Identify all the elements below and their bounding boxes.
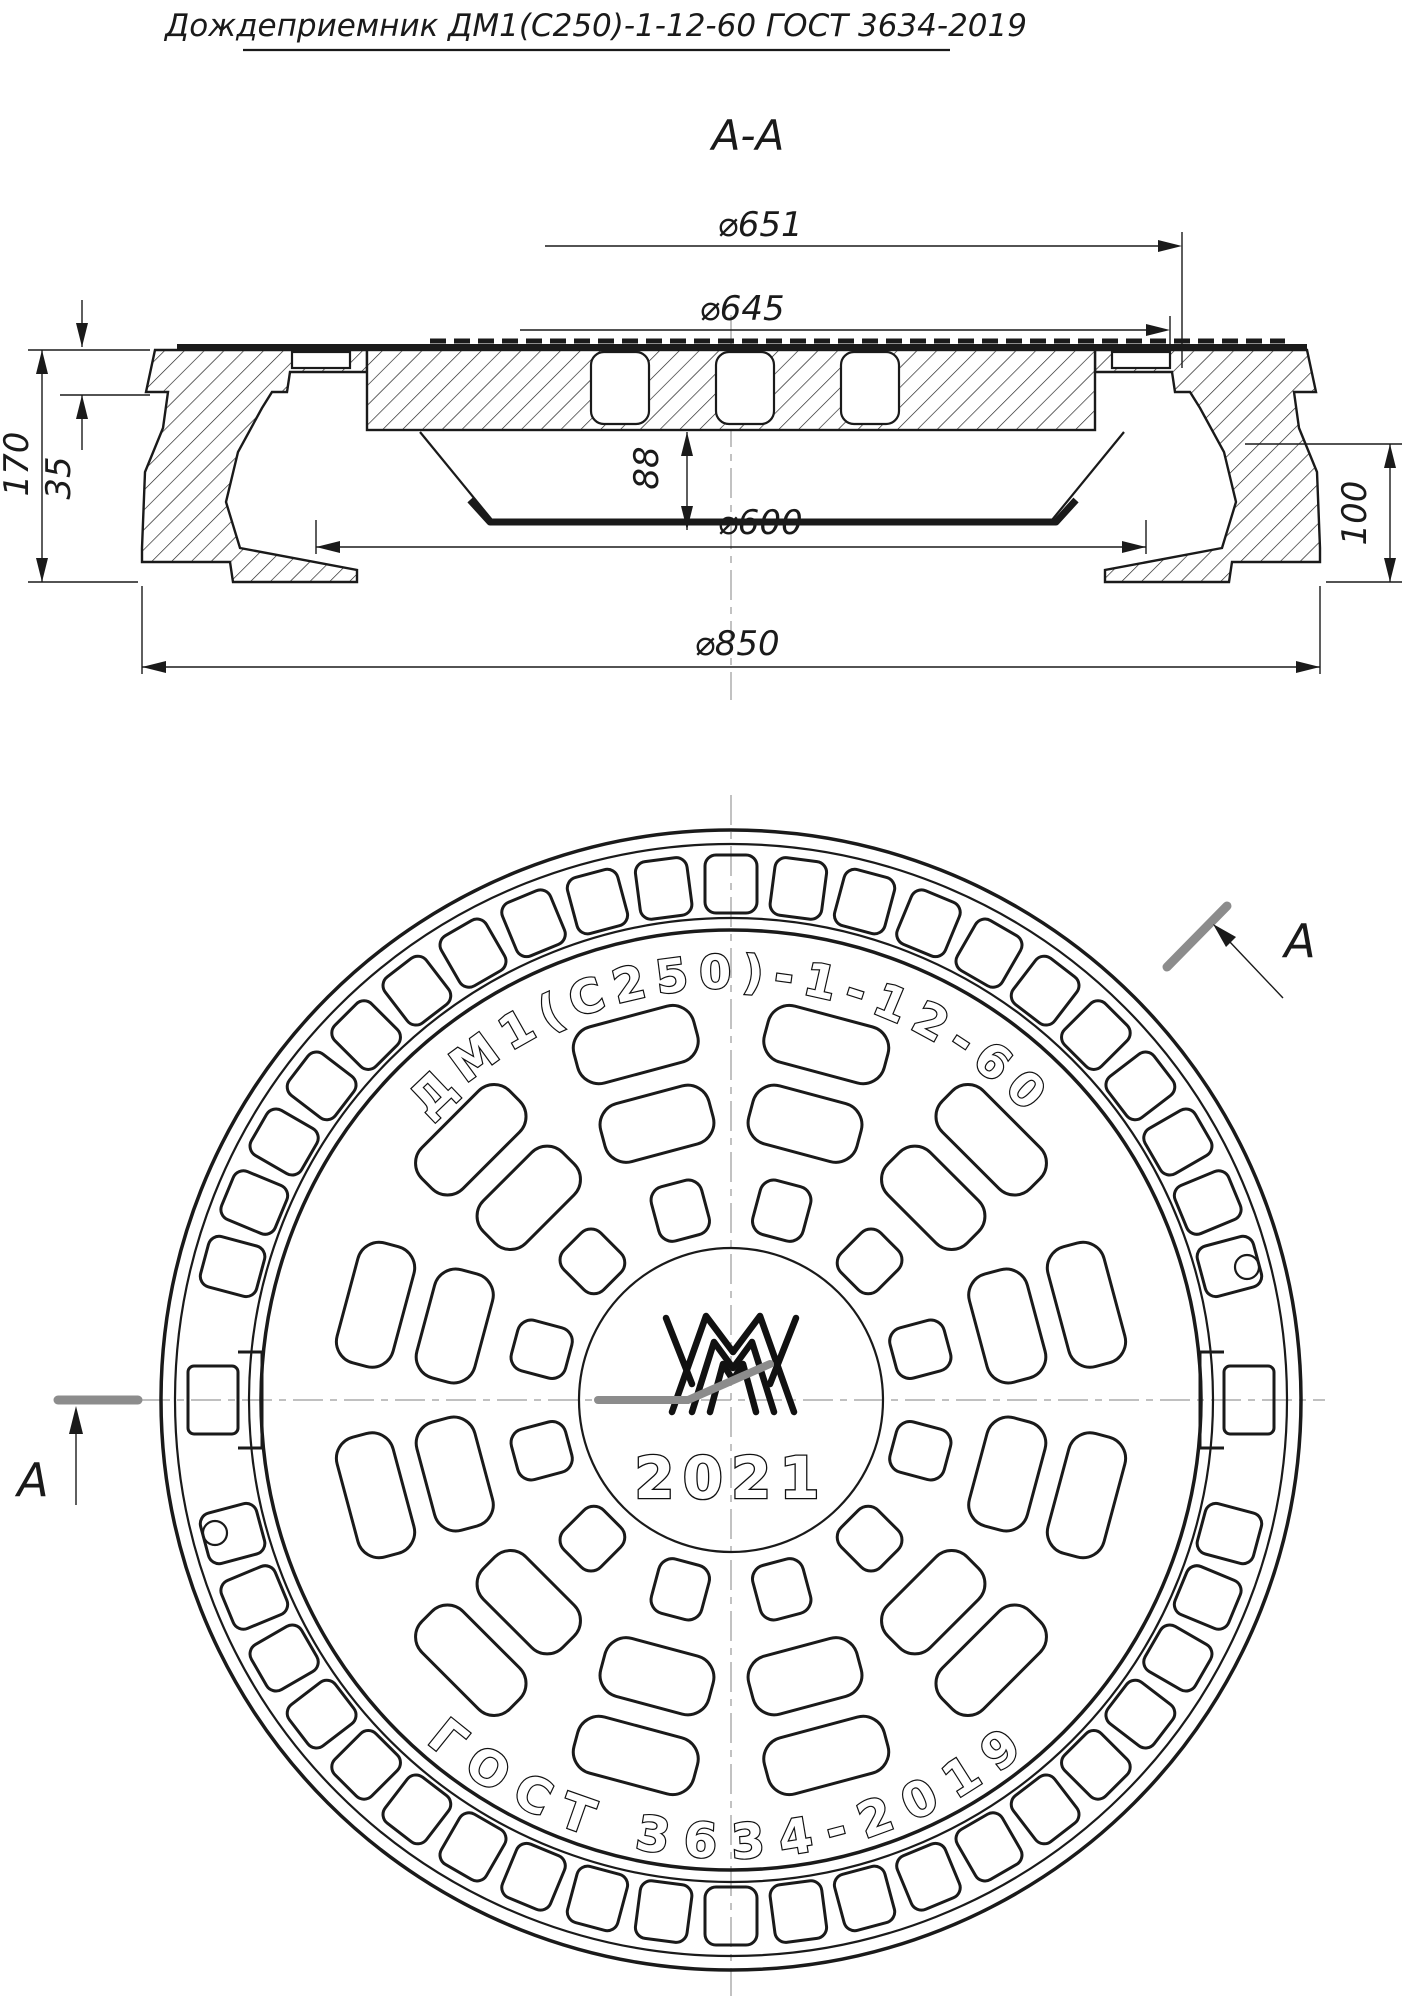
basin-wall-right bbox=[1052, 432, 1124, 520]
dim-850-label: ⌀850 bbox=[694, 624, 779, 664]
cut-mark-right: А bbox=[1167, 906, 1316, 998]
dim-88-label: 88 bbox=[627, 446, 667, 489]
grate-slot-section bbox=[716, 352, 774, 424]
dim-651-label: ⌀651 bbox=[717, 205, 802, 245]
dim-651: ⌀651 bbox=[545, 205, 1182, 368]
seat-gap-left bbox=[292, 352, 350, 368]
dim-100-label: 100 bbox=[1335, 481, 1375, 546]
drawing-title: Дождеприемник ДМ1(С250)-1-12-60 ГОСТ 363… bbox=[163, 8, 1027, 44]
lock-hole bbox=[203, 1521, 227, 1545]
grate-slot-section bbox=[591, 352, 649, 424]
cut-mark-left: А bbox=[14, 1400, 138, 1507]
dim-88: 88 bbox=[627, 432, 693, 530]
section-view: А-А ⌀651 ⌀645 bbox=[0, 111, 1402, 700]
dim-35: 35 bbox=[39, 300, 150, 500]
top-surface bbox=[177, 344, 1307, 350]
seat-gap-right bbox=[1112, 352, 1170, 368]
cut-label-left: А bbox=[14, 1453, 48, 1507]
dim-645-label: ⌀645 bbox=[699, 289, 784, 329]
dim-170-label: 170 bbox=[0, 432, 37, 497]
lock-hole bbox=[1235, 1255, 1259, 1279]
drawing-title-block: Дождеприемник ДМ1(С250)-1-12-60 ГОСТ 363… bbox=[163, 8, 1027, 50]
plan-view: 2021 ДМ1(С250)-1-12-60 ГОСТ 3634-2019 А … bbox=[14, 795, 1325, 1996]
cut-label-right: А bbox=[1281, 914, 1315, 968]
basin-wall-left bbox=[420, 432, 492, 520]
cast-year: 2021 bbox=[634, 1444, 827, 1512]
technical-drawing-canvas: Дождеприемник ДМ1(С250)-1-12-60 ГОСТ 363… bbox=[0, 0, 1408, 2000]
dim-35-label: 35 bbox=[39, 456, 79, 499]
dim-600-label: ⌀600 bbox=[717, 503, 802, 543]
drawing-sheet: { "title": "Дождеприемник ДМ1(С250)-1-12… bbox=[0, 0, 1408, 2000]
section-label: А-А bbox=[709, 111, 785, 160]
dim-600: ⌀600 bbox=[316, 503, 1146, 554]
grate-slot-section bbox=[841, 352, 899, 424]
